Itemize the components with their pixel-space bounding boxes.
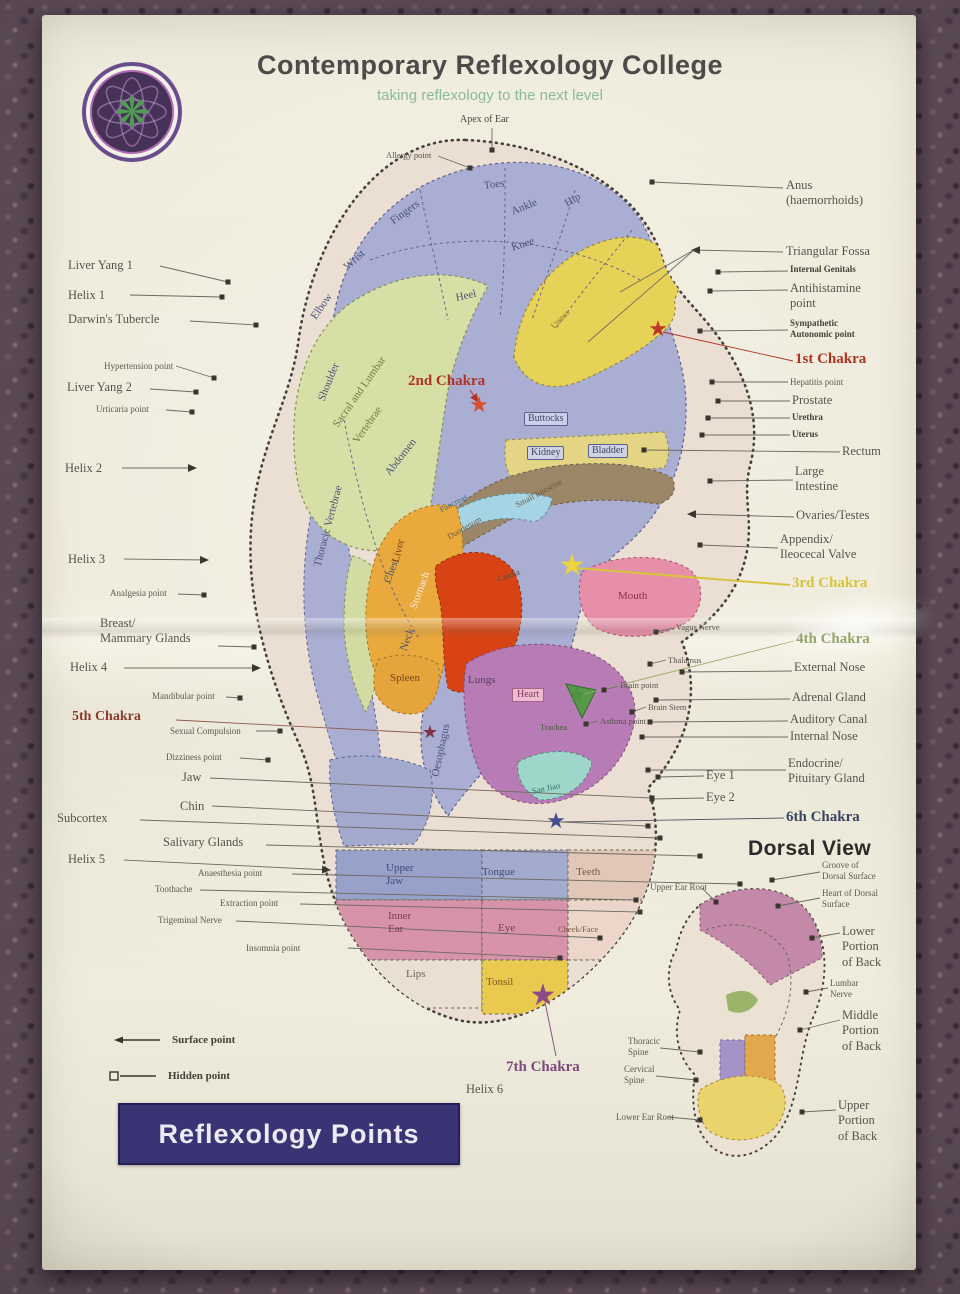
chart-label: Auditory Canal <box>790 712 867 727</box>
chart-label: Internal Genitals <box>790 264 856 275</box>
3rd-chakra-star: ★ <box>559 551 586 581</box>
chart-label: Cardia <box>496 567 521 584</box>
label-layer: Liver Yang 1Helix 1Darwin's TubercleHype… <box>0 0 960 1294</box>
chart-label: 5th Chakra <box>72 708 141 725</box>
chart-label: Teeth <box>576 866 600 879</box>
chart-label: Cheek/Face <box>558 924 598 934</box>
chart-label: Chin <box>180 799 204 814</box>
chart-label: Anus (haemorrhoids) <box>786 178 863 209</box>
chart-label: Prostate <box>792 393 832 408</box>
chart-label: Upper Jaw <box>386 862 414 889</box>
chart-label: Stomach <box>408 570 434 611</box>
chart-label: Knee <box>510 235 536 255</box>
chart-label: Elbow <box>309 291 336 322</box>
chart-label: Antihistamine point <box>790 281 861 312</box>
chart-label: Urticaria point <box>96 404 149 415</box>
chart-label: Internal Nose <box>790 729 858 744</box>
chart-label: 4th Chakra <box>796 630 870 648</box>
chart-label: Eye 1 <box>706 768 735 783</box>
chart-label: Tongue <box>482 866 515 879</box>
chart-label: Dizziness point <box>166 752 222 763</box>
chart-label: Allergy point <box>386 150 431 160</box>
chart-label: Lower Portion of Back <box>842 924 881 970</box>
chart-label: Helix 3 <box>68 552 105 567</box>
chart-label: Groove of Dorsal Surface <box>822 860 876 882</box>
chart-label: 1st Chakra <box>795 350 866 368</box>
1st-chakra-star: ★ <box>648 319 668 341</box>
chart-label: Jaw <box>182 770 201 785</box>
chart-label: Small Intestine <box>514 477 564 510</box>
chart-label: Helix 5 <box>68 852 105 867</box>
chart-label: Anaesthesia point <box>198 868 262 879</box>
chart-label: Cervical Spine <box>624 1064 655 1086</box>
chart-label: Liver <box>390 538 409 564</box>
chart-label: Middle Portion of Back <box>842 1008 881 1054</box>
chart-label: Helix 4 <box>70 660 107 675</box>
chart-label: 2nd Chakra <box>408 372 485 390</box>
chart-label: Helix 6 <box>466 1082 503 1097</box>
chart-label: Bladder <box>588 444 628 458</box>
chart-label: Inner Ear <box>388 910 411 937</box>
chart-label: Duodenum <box>445 514 483 542</box>
chart-label: Fingers <box>388 198 423 228</box>
chart-label: Lips <box>406 968 426 981</box>
chart-label: Analgesia point <box>110 588 167 599</box>
chart-label: Hypertension point <box>104 361 173 372</box>
chart-label: Rectum <box>842 444 881 459</box>
chart-label: Thoracic Vertebrae <box>312 484 347 568</box>
chart-label: Subcortex <box>57 811 108 826</box>
chart-label: Asthma point <box>600 716 646 726</box>
chart-label: Lower Ear Root <box>616 1112 674 1123</box>
chart-label: Vertebrae <box>351 404 386 446</box>
chart-label: Pancreas <box>438 491 470 514</box>
chart-label: Sexual Compulsion <box>170 726 241 737</box>
chart-label: Sympathetic Autonomic point <box>790 318 855 340</box>
chart-label: Triangular Fossa <box>786 244 870 259</box>
chart-label: Heart <box>512 688 544 702</box>
chart-label: Neck <box>398 627 419 653</box>
chart-label: San Jiao <box>531 780 561 796</box>
chart-label: Endocrine/ Pituitary Gland <box>788 756 865 787</box>
chart-label: Tonsil <box>486 976 513 989</box>
chart-label: Brain point <box>620 680 658 690</box>
chart-label: Ovaries/Testes <box>796 508 869 523</box>
chart-label: Lungs <box>468 674 496 687</box>
photo-of-poster: ❋ Contemporary Reflexology College takin… <box>0 0 960 1294</box>
2nd-chakra-star: ★ <box>469 395 489 417</box>
chart-label: Helix 1 <box>68 288 105 303</box>
chart-label: Eye 2 <box>706 790 735 805</box>
chart-label: Breast/ Mammary Glands <box>100 616 191 647</box>
chart-label: Helix 2 <box>65 461 102 476</box>
chart-label: Darwin's Tubercle <box>68 312 159 327</box>
chart-label: 3rd Chakra <box>792 574 867 592</box>
chart-label: Hepatitis point <box>790 377 843 388</box>
chart-label: Thoracic Spine <box>628 1036 660 1058</box>
chart-label: Spleen <box>390 672 420 685</box>
7th-chakra-star: ★ <box>530 981 557 1011</box>
chart-label: Vagus Nerve <box>676 622 720 632</box>
chart-label: Abdomen <box>383 436 420 478</box>
chart-label: Uterus <box>792 429 818 440</box>
chart-label: Large Intestine <box>795 464 838 495</box>
chart-label: Uterus <box>548 307 571 330</box>
chart-label: Insomnia point <box>246 943 300 954</box>
chart-label: External Nose <box>794 660 865 675</box>
chart-label: Thalamus <box>668 655 702 665</box>
chart-label: Salivary Glands <box>163 835 243 850</box>
chart-label: Liver Yang 1 <box>68 258 133 273</box>
chart-label: Apex of Ear <box>460 114 509 126</box>
chart-label: Ankle <box>509 196 539 219</box>
chart-label: Adrenal Gland <box>792 690 866 705</box>
chart-label: Kidney <box>527 446 564 460</box>
chart-label: Extraction point <box>220 898 278 909</box>
chart-label: Mouth <box>618 590 647 603</box>
chart-label: 6th Chakra <box>786 808 860 826</box>
chart-label: Urethra <box>792 412 823 423</box>
chart-label: Toothache <box>155 884 192 895</box>
chart-label: Heart of Dorsal Surface <box>822 888 878 910</box>
chart-label: Trigeminal Nerve <box>158 915 222 926</box>
chart-label: Shoulder <box>316 361 343 403</box>
dorsal-view-title: Dorsal View <box>748 836 871 862</box>
chart-label: Trachea <box>540 722 567 732</box>
chart-label: Heel <box>455 288 478 305</box>
6th-chakra-star: ★ <box>546 811 566 833</box>
chart-label: Toes <box>483 177 505 193</box>
5th-chakra-star: ★ <box>422 724 438 742</box>
chart-label: 7th Chakra <box>506 1058 580 1076</box>
chart-label: Upper Ear Root <box>650 882 707 893</box>
chart-label: Upper Portion of Back <box>838 1098 877 1144</box>
chart-label: Liver Yang 2 <box>67 380 132 395</box>
4th-chakra-star: ★ <box>567 685 587 707</box>
chart-label: Eye <box>498 922 515 935</box>
chart-label: Hip <box>563 191 584 211</box>
chart-label: Mandibular point <box>152 691 215 702</box>
chart-label: Appendix/ Ileocecal Valve <box>780 532 856 563</box>
chart-label: Buttocks <box>524 412 568 426</box>
chart-label: Brain Stem <box>648 702 686 712</box>
chart-label: Wrist <box>342 248 369 274</box>
chart-label: Lumbar Nerve <box>830 978 859 1000</box>
